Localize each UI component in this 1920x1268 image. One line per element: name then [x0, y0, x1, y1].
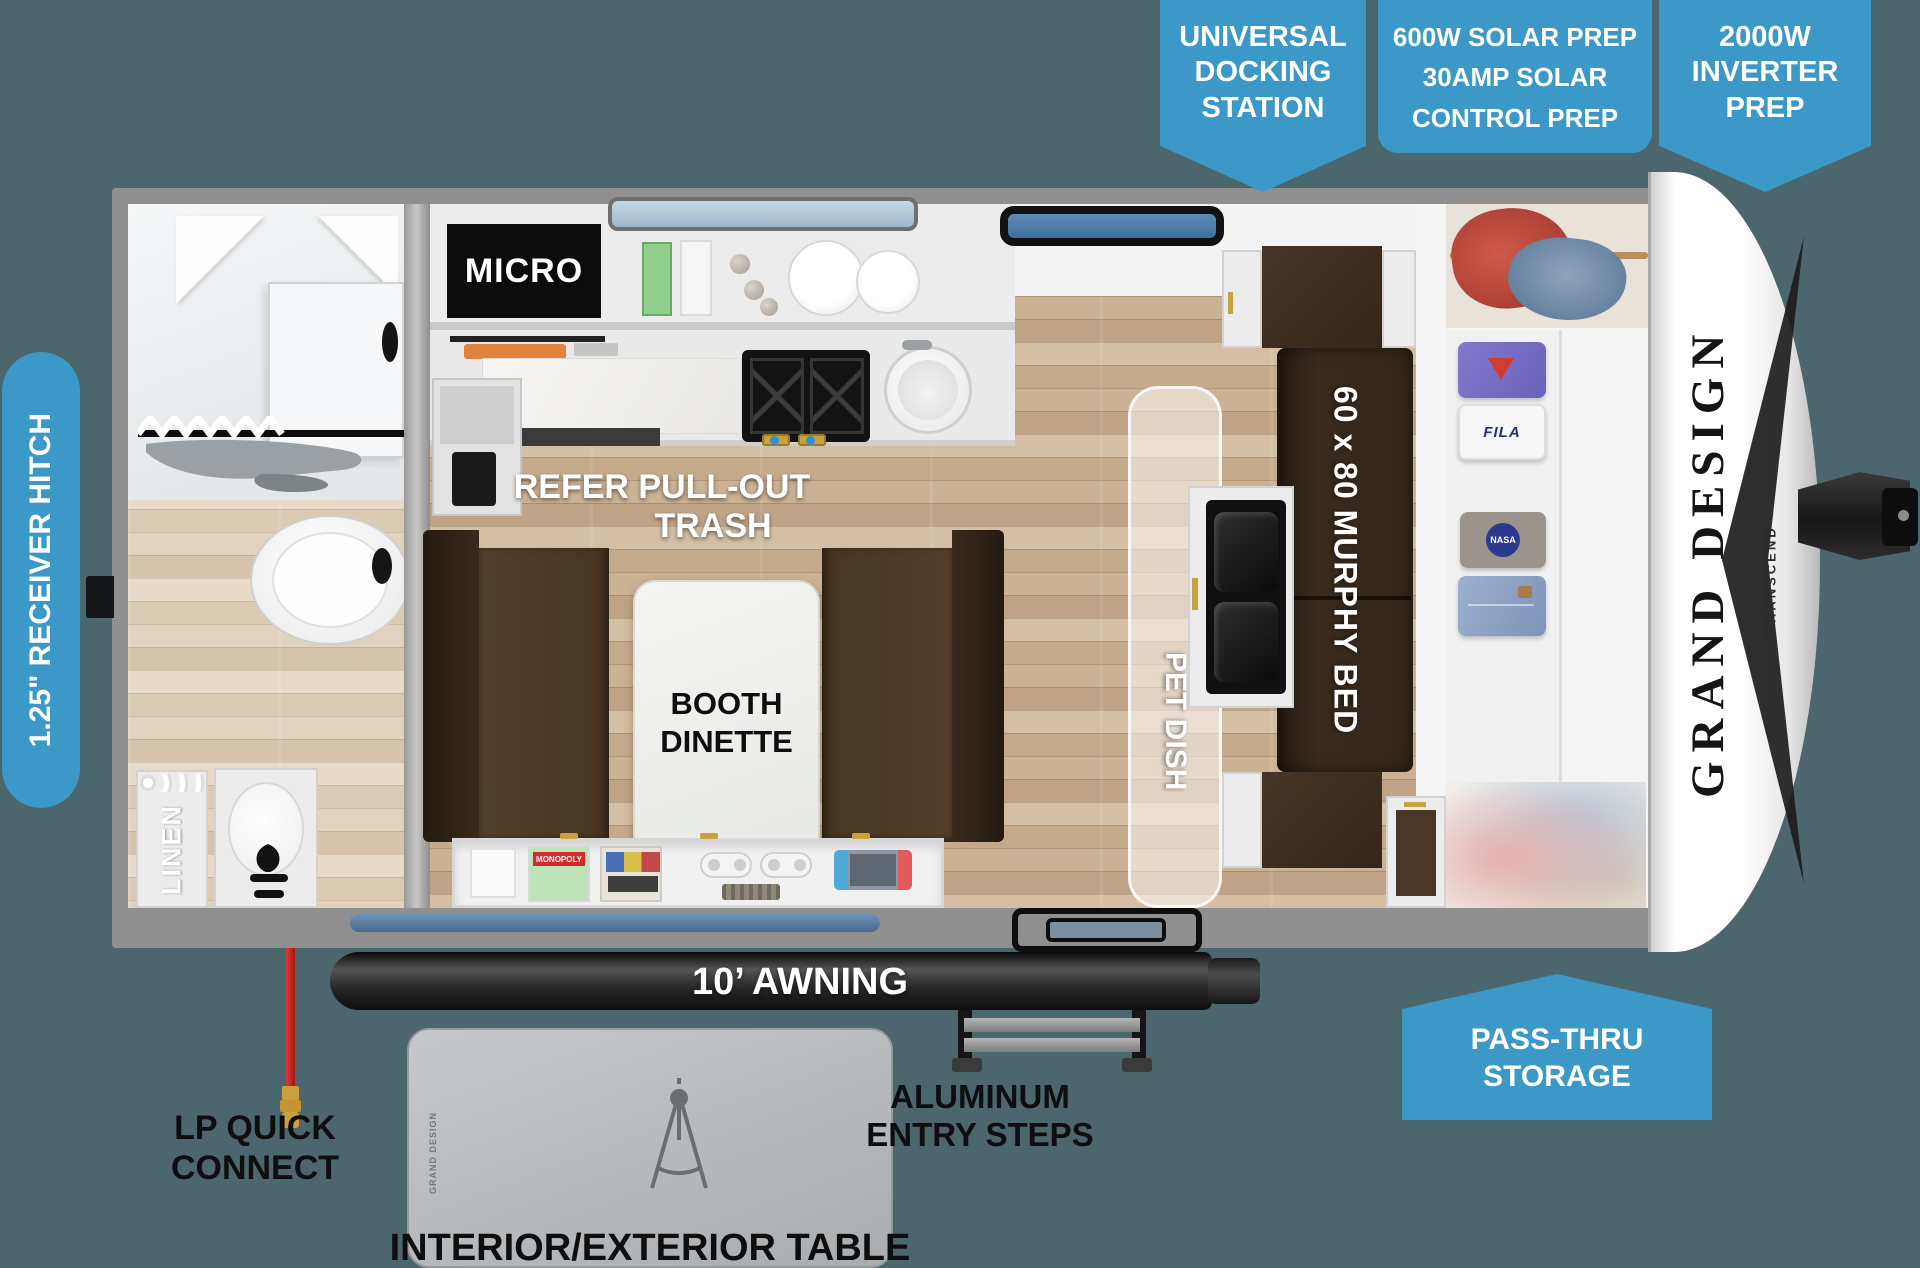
booth-dinette-label-line2: DINETTE	[633, 724, 820, 760]
stove-knob-left-dot	[770, 436, 779, 445]
steps-tread-1	[964, 1018, 1140, 1032]
dinette-right-seat	[822, 548, 952, 842]
badge-receiver-hitch: 1.25" RECEIVER HITCH	[2, 352, 80, 808]
spice-jar-1	[730, 254, 750, 274]
lp-quick-connect-label-line2: CONNECT	[150, 1148, 360, 1188]
stove-grate-right	[810, 358, 864, 434]
spice-jar-2	[744, 280, 764, 300]
trash-bin	[452, 452, 496, 506]
bed-cabinet-top-left-handle	[1228, 292, 1233, 314]
pass-thru-glass	[1446, 782, 1646, 908]
badge-inverter-line1: 2000W	[1659, 20, 1871, 55]
bottom-right-cabinet-door	[1396, 810, 1436, 896]
controller-2	[760, 852, 812, 878]
folded-jeans	[1458, 576, 1546, 636]
jeans-patch	[1518, 586, 1532, 598]
jeans-seam	[1468, 604, 1534, 606]
interior-exterior-table-label: INTERIOR/EXTERIOR TABLE	[370, 1228, 930, 1268]
nasa-logo: NASA	[1486, 523, 1520, 557]
toilet-hinge	[372, 548, 392, 584]
badge-universal-line3: STATION	[1160, 91, 1366, 126]
awning-end-cap	[1208, 958, 1260, 1004]
folded-shirt-superman	[1458, 342, 1546, 398]
controller-2-btn	[794, 859, 806, 871]
controller-2-pad	[768, 859, 780, 871]
badge-solar-prep: 600W SOLAR PREP 30AMP SOLAR CONTROL PREP	[1378, 0, 1652, 153]
compass-icon	[636, 1076, 722, 1196]
switch-joycon-right	[898, 850, 912, 890]
bottom-right-cabinet-handle	[1404, 802, 1426, 807]
tablet-box	[470, 848, 516, 898]
console-handle-2	[700, 833, 718, 839]
fila-logo: FILA	[1483, 424, 1520, 441]
refer-pullout-label-line2: TRASH	[563, 507, 863, 545]
badge-solar-line3: CONTROL PREP	[1378, 98, 1652, 138]
entry-mat-strip	[350, 914, 880, 932]
steps-foot-left	[952, 1058, 982, 1072]
range-hood	[498, 428, 660, 446]
badge-solar-line2: 30AMP SOLAR	[1378, 57, 1652, 97]
superman-logo	[1488, 358, 1514, 380]
console-handle-1	[560, 833, 578, 839]
canister	[680, 240, 712, 316]
monopoly-box: MONOPOLY	[528, 846, 590, 902]
entry-steps-label-line1: ALUMINUM	[870, 1078, 1090, 1116]
folded-shirt-fila: FILA	[1458, 404, 1546, 460]
shower-corner-shelf-left	[176, 216, 264, 304]
folded-shirt-nasa: NASA	[1460, 512, 1546, 568]
boardgame-art	[606, 852, 660, 872]
shower-door-handle	[382, 322, 398, 362]
entry-steps-label-line2: ENTRY STEPS	[850, 1116, 1110, 1154]
toilet-seat	[272, 532, 388, 628]
controller-1-btn	[734, 859, 746, 871]
entry-door-screen	[1046, 918, 1166, 942]
plate-stack-1	[788, 240, 864, 316]
dinette-left-seat	[479, 548, 609, 842]
table-brand-logo: GRAND DESIGN	[424, 1078, 442, 1228]
controller-1-pad	[708, 859, 720, 871]
badge-inverter-line3: PREP	[1659, 91, 1871, 126]
rear-bumper-tab	[86, 576, 114, 618]
lp-quick-connect-label-line1: LP QUICK	[150, 1108, 360, 1148]
refrigerator-face	[440, 386, 514, 444]
badge-universal-line2: DOCKING	[1160, 55, 1366, 90]
kitchen-window	[608, 197, 918, 231]
murphy-bed-label: 60 x 80 MURPHY BED	[1277, 360, 1413, 760]
pet-dish-drawer-handle	[1192, 578, 1198, 610]
awning-label: 10’ AWNING	[600, 960, 1000, 1004]
microwave-label: MICRO	[465, 252, 583, 291]
microwave: MICRO	[447, 224, 601, 318]
bedroom-window	[1000, 206, 1224, 246]
console-handle-3	[852, 833, 870, 839]
badge-solar-line1: 600W SOLAR PREP	[1378, 17, 1652, 57]
controller-1	[700, 852, 752, 878]
steps-tread-2	[964, 1038, 1140, 1052]
lp-hose	[286, 948, 295, 1086]
switch-screen	[850, 854, 896, 886]
spice-jar-3	[760, 298, 778, 316]
linen-towels	[140, 774, 204, 792]
linen-label: LINEN	[136, 796, 208, 904]
kitchen-faucet	[902, 340, 932, 350]
receiver-hitch-label: 1.25" RECEIVER HITCH	[24, 413, 58, 747]
pet-bowl-2	[1214, 602, 1278, 682]
pet-bowl-1	[1214, 512, 1278, 592]
refer-pullout-label-line1: REFER PULL-OUT	[512, 468, 812, 506]
boardgame-box	[600, 846, 662, 902]
badge-pass-thru-storage: PASS-THRU STORAGE	[1402, 974, 1712, 1120]
faucet-icon	[238, 842, 298, 904]
counter-vent	[450, 336, 605, 342]
kitchen-sink-basin	[898, 360, 958, 420]
badge-passthru-line1: PASS-THRU	[1402, 1022, 1712, 1059]
bed-cabinet-bottom	[1262, 772, 1382, 868]
badge-universal-docking: UNIVERSAL DOCKING STATION	[1160, 0, 1366, 192]
lp-fitting-top	[282, 1086, 299, 1100]
switch-joycon-left	[834, 850, 848, 890]
entry-steps	[952, 1010, 1152, 1072]
hitch-coupler-bolt	[1898, 510, 1909, 521]
cutting-board	[642, 242, 672, 316]
booth-dinette-label-line1: BOOTH	[633, 686, 820, 722]
badge-passthru-line2: STORAGE	[1402, 1059, 1712, 1096]
floorplan-canvas: LINEN MICRO REFER PULL-OUT TRASH	[0, 0, 1920, 1268]
dinette-left-bench-back	[423, 530, 479, 842]
plate-stack-2	[856, 250, 920, 314]
grand-design-logo: GRAND DESIGN	[1650, 180, 1766, 944]
transcend-logo: TRANSCEND	[1760, 470, 1782, 690]
stove-knob-right-dot	[806, 436, 815, 445]
bed-cabinet-bottom-left	[1222, 772, 1262, 868]
monopoly-title: MONOPOLY	[533, 852, 585, 866]
stove-grate-left	[750, 358, 804, 434]
boardgame-band	[608, 876, 658, 892]
nintendo-switch	[834, 850, 912, 890]
remote-control	[722, 884, 780, 900]
bed-cabinet-top	[1262, 246, 1382, 348]
steps-foot-right	[1122, 1058, 1152, 1072]
badge-inverter-line2: INVERTER	[1659, 55, 1871, 90]
badge-inverter-prep: 2000W INVERTER PREP	[1659, 0, 1871, 192]
bed-cabinet-top-right	[1382, 250, 1416, 348]
dinette-right-bench-back	[952, 530, 1004, 842]
counter-gadget	[574, 343, 618, 356]
utensil-tray	[464, 344, 566, 359]
badge-universal-line1: UNIVERSAL	[1160, 20, 1366, 55]
shower-head-icon	[142, 434, 372, 496]
